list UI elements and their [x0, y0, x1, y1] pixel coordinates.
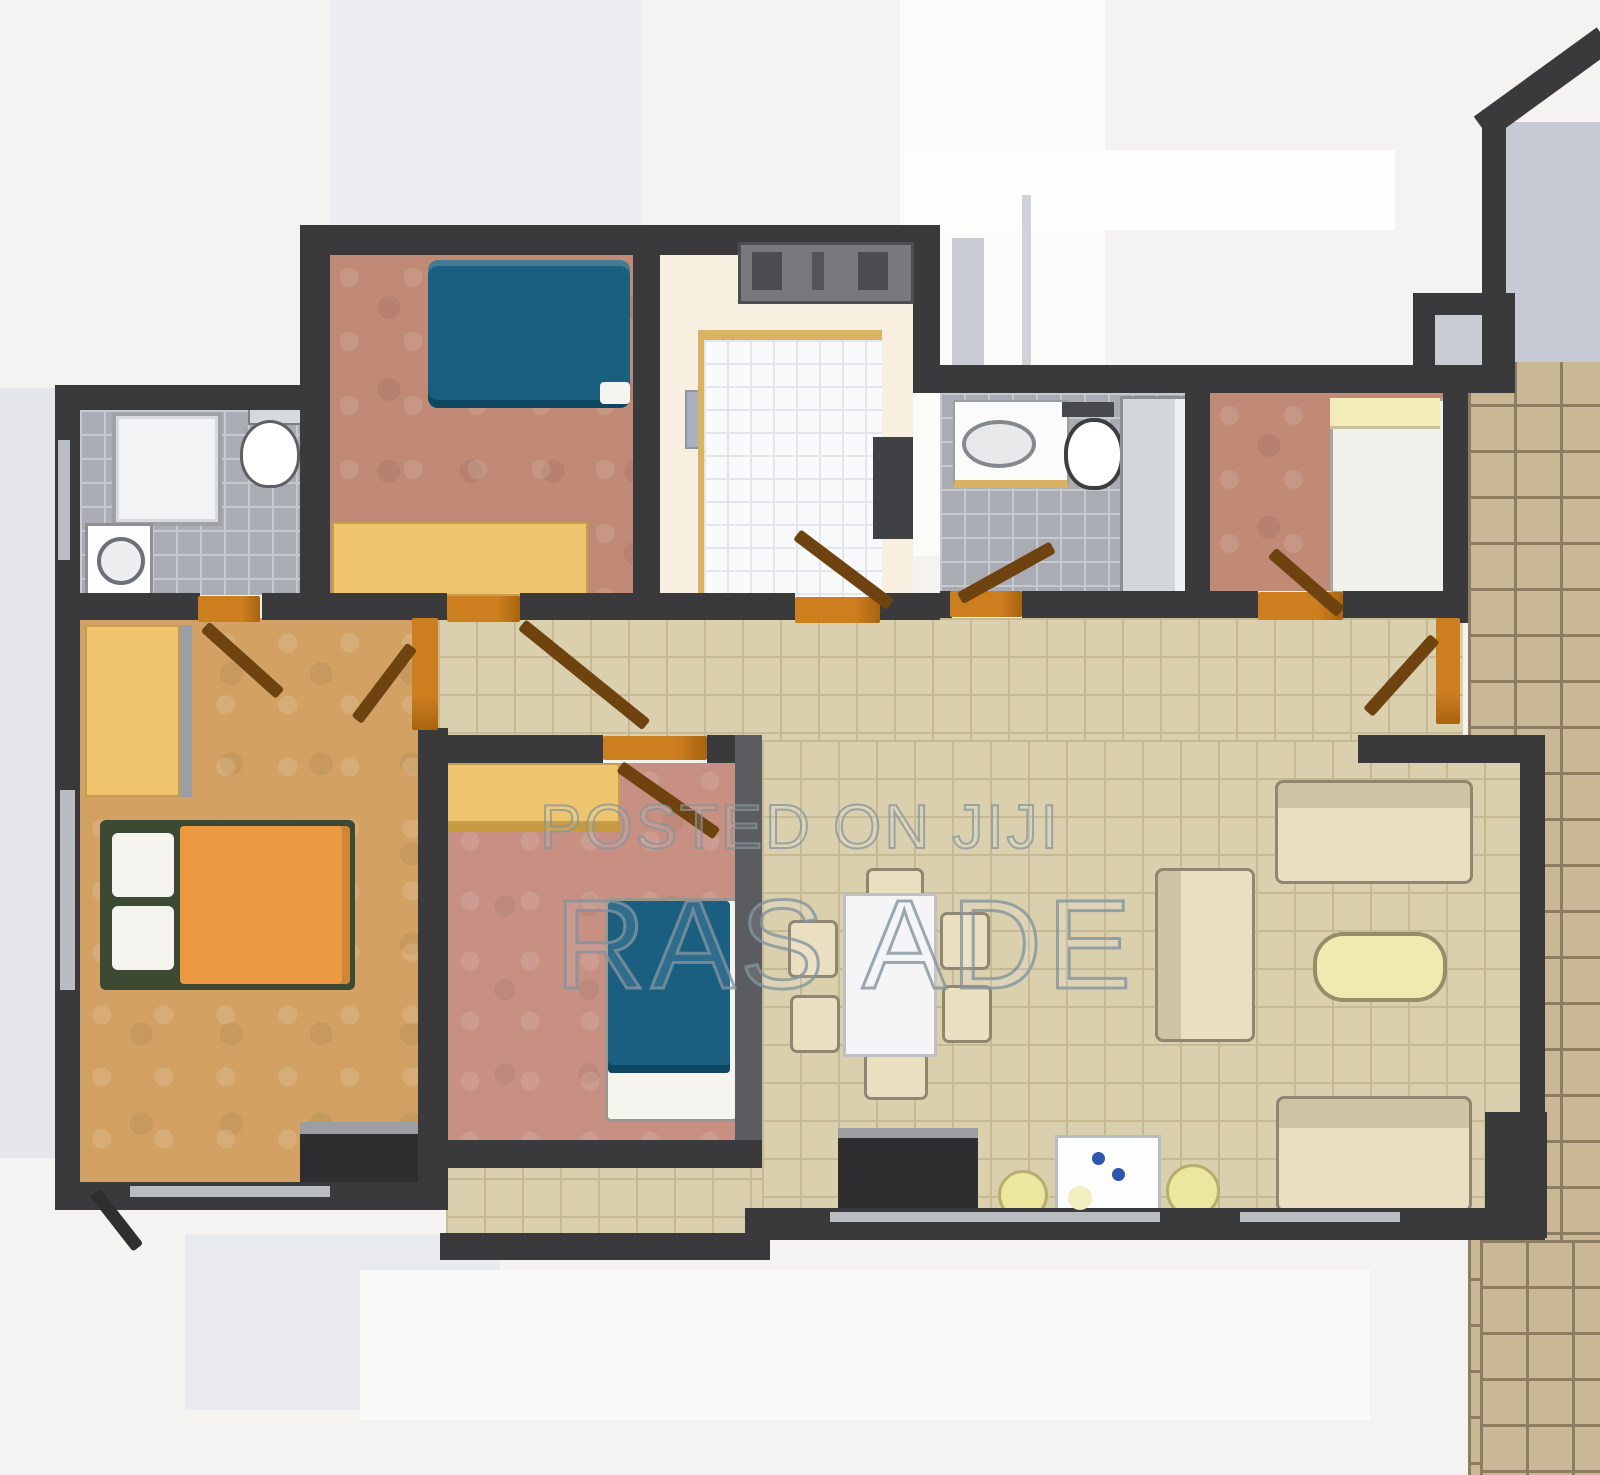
background-shape: [360, 1270, 1370, 1420]
washing-machine-drum-icon: [97, 537, 145, 585]
door-leaf-kitchen: [795, 597, 880, 623]
tv-cabinet: [838, 1128, 978, 1212]
shower-icon: [112, 412, 222, 526]
door-leaf-terrace: [1436, 618, 1460, 724]
fridge: [873, 437, 913, 539]
toilet-2-bowl-icon: [1064, 418, 1124, 490]
wall-bathroom1-bottom-right: [262, 593, 330, 620]
wall-bedroom2-bottom-right: [1343, 591, 1443, 618]
cooker-plate-icon: [1068, 1186, 1092, 1210]
window-living-bottom-2: [1240, 1212, 1400, 1222]
wall-bathroom1-top: [55, 385, 330, 410]
wall-living-right-stub: [1358, 735, 1545, 763]
sofa-two-seater: [1275, 780, 1473, 884]
wall-upper-right-horizontal: [913, 365, 1485, 393]
toilet-bowl-icon: [240, 420, 300, 488]
window-living-bottom: [830, 1212, 1160, 1222]
corner-room-interior: [1506, 122, 1600, 362]
wall-bathroom2-bottom-right: [1022, 591, 1210, 618]
wall-bedroom1-left: [300, 225, 330, 620]
shower-2-icon: [1120, 396, 1188, 594]
cooker-knob-icon: [1092, 1152, 1105, 1165]
bed-pillow: [112, 833, 174, 897]
door-leaf-bathroom1: [198, 596, 260, 622]
door-leaf-bedroom3: [603, 736, 707, 760]
sofa-three-seater: [1276, 1096, 1472, 1212]
background-shape: [330, 0, 642, 228]
floor-plan-image: POSTED ON JIJI RAS ADE: [0, 0, 1600, 1475]
bed-single-white-headboard: [1330, 398, 1440, 429]
bed-double-orange: [180, 826, 350, 984]
armchair: [1155, 868, 1255, 1042]
stove-burner-icon: [752, 252, 782, 290]
background-band-left: [0, 388, 56, 1158]
armchair-backrest: [1158, 871, 1181, 1039]
wall-bedroom1-bottom-right: [520, 593, 660, 620]
wall-bathroom2-bedroom2: [1185, 393, 1210, 618]
wall-master-right: [418, 728, 448, 1210]
terrace-floor-bottom: [1480, 1240, 1600, 1475]
window-master-left: [60, 790, 75, 990]
niche-wall-right: [1493, 293, 1515, 393]
window-master-bottom: [130, 1186, 330, 1197]
wall-bedroom1-kitchen: [633, 225, 660, 620]
dining-chair: [864, 1052, 928, 1100]
wall-bedroom3-top-left: [418, 735, 603, 763]
wall-bedroom3-bottom: [418, 1140, 762, 1168]
door-leaf-master: [412, 618, 438, 730]
wall-bedroom1-bottom-left: [330, 593, 447, 620]
kitchen-tiled-area: [698, 330, 882, 602]
bed-sheet-fold: [600, 382, 630, 404]
sofa-backrest: [1278, 783, 1470, 808]
sofa-backrest: [1279, 1099, 1469, 1128]
wall-passage-bottom: [440, 1233, 770, 1260]
wall-living-bottom-connector: [745, 1208, 770, 1260]
wall-bedroom2-right: [1443, 393, 1468, 623]
stove-burner-icon: [858, 252, 888, 290]
coffee-table: [1313, 932, 1447, 1002]
watermark-line-2: RAS ADE: [555, 872, 1035, 1017]
background-shape: [905, 150, 1395, 230]
door-leaf-bedroom1: [447, 596, 520, 622]
sink-icon: [962, 420, 1036, 468]
cooker-knob-icon: [1112, 1168, 1125, 1181]
wardrobe-master: [85, 625, 192, 797]
toilet-2-tank-icon: [1062, 402, 1114, 417]
watermark-line-1: POSTED ON JIJI: [540, 792, 1040, 863]
window-bathroom1-left: [58, 440, 70, 560]
bed-pillow: [112, 906, 174, 970]
stove-burner-icon: [812, 252, 824, 290]
wall-bedroom2-bottom-left: [1210, 591, 1258, 618]
wall-kitchen-bottom-left: [660, 593, 795, 620]
